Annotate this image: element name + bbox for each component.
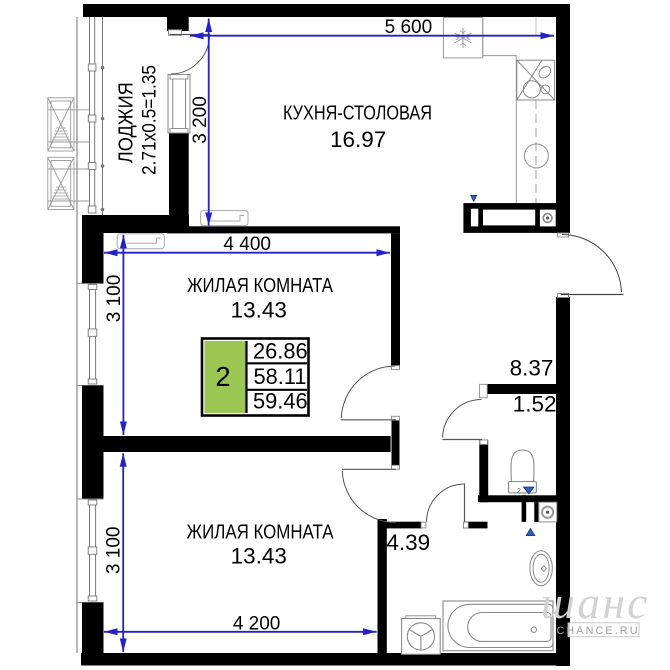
svg-text:16.97: 16.97	[330, 127, 386, 152]
svg-text:CHANCE.RU: CHANCE.RU	[557, 625, 640, 637]
svg-text:59.46: 59.46	[253, 388, 308, 413]
svg-text:4.39: 4.39	[386, 530, 430, 555]
svg-text:1.52: 1.52	[513, 392, 557, 417]
svg-text:КУХНЯ-СТОЛОВАЯ: КУХНЯ-СТОЛОВАЯ	[283, 103, 432, 125]
svg-text:4 400: 4 400	[223, 234, 271, 255]
svg-text:5 600: 5 600	[385, 17, 433, 38]
svg-text:8.37: 8.37	[510, 356, 554, 381]
svg-text:58.11: 58.11	[254, 364, 307, 389]
svg-text:2.71x0.5=1.35: 2.71x0.5=1.35	[140, 65, 161, 175]
svg-text:2: 2	[517, 488, 521, 495]
svg-text:3 100: 3 100	[104, 275, 125, 323]
svg-text:ЖИЛАЯ КОМНАТА: ЖИЛАЯ КОМНАТА	[187, 522, 335, 544]
svg-text:шанс: шанс	[541, 578, 650, 628]
svg-text:13.43: 13.43	[231, 544, 287, 569]
svg-text:3 200: 3 200	[190, 96, 211, 144]
svg-text:ЖИЛАЯ КОМНАТА: ЖИЛАЯ КОМНАТА	[187, 275, 334, 297]
svg-text:3 100: 3 100	[103, 527, 124, 575]
svg-text:2: 2	[215, 361, 230, 392]
svg-text:13.43: 13.43	[231, 298, 287, 323]
svg-text:26.86: 26.86	[253, 338, 308, 363]
svg-text:4 200: 4 200	[233, 613, 281, 634]
svg-text:ЛОДЖИЯ: ЛОДЖИЯ	[116, 82, 138, 163]
